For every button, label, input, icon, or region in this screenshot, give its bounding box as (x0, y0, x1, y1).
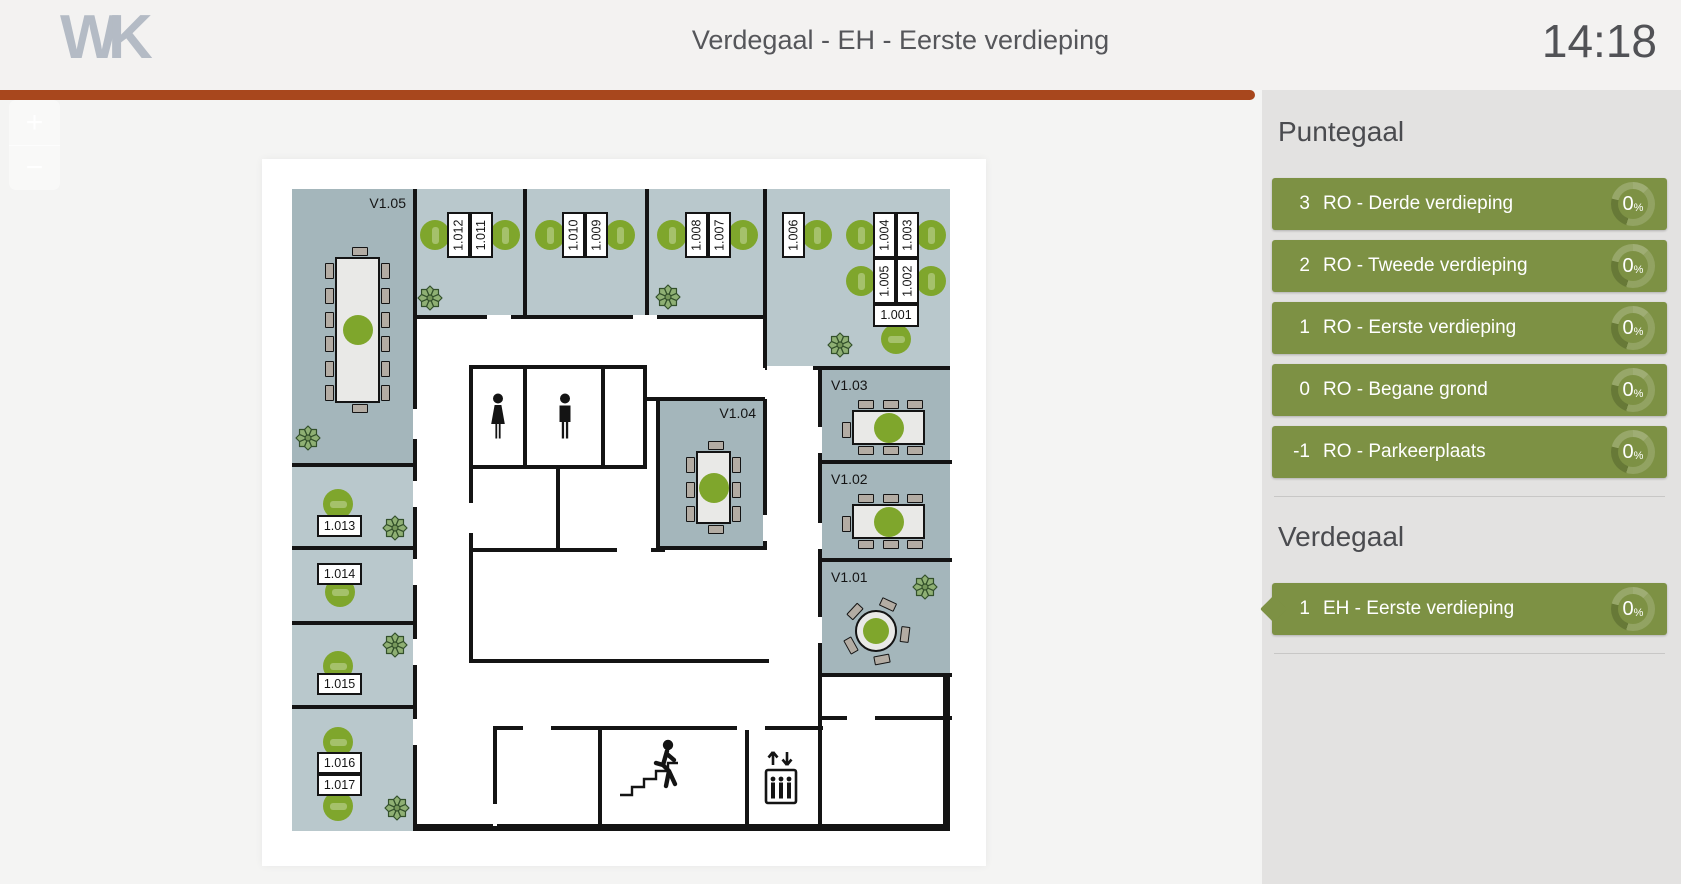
desk-1.010: 1.010 (562, 212, 585, 258)
floor-label: RO - Tweede verdieping (1323, 255, 1611, 277)
top-bar: WK Verdegaal - EH - Eerste verdieping 14… (0, 0, 1681, 90)
wall (469, 365, 645, 369)
building-header: Verdegaal (1278, 521, 1667, 553)
desk-label: 1.006 (787, 219, 800, 250)
chair-icon (325, 288, 334, 304)
section-divider (1274, 496, 1665, 497)
chair-icon (381, 312, 390, 328)
desk-label: 1.005 (878, 265, 891, 296)
door-gap (469, 503, 473, 533)
desk-1.005: 1.005 (873, 258, 896, 304)
desk-label: 1.017 (324, 779, 355, 792)
chair-icon (907, 400, 923, 409)
wall (818, 673, 822, 831)
occupancy-gauge: 0% (1611, 587, 1655, 631)
chair-icon (928, 227, 935, 244)
wall (292, 463, 415, 467)
room-label: V1.02 (831, 471, 868, 487)
chair-icon (547, 227, 554, 244)
door-gap (767, 366, 813, 370)
door-gap (413, 639, 417, 665)
desk-label: 1.008 (690, 219, 703, 250)
chair-icon (617, 227, 624, 244)
desk-label: 1.014 (324, 568, 355, 581)
chair-icon (381, 385, 390, 401)
chair-icon (325, 336, 334, 352)
floor-button-puntegaal-1[interactable]: 1RO - Eerste verdieping0% (1272, 302, 1667, 354)
seat-indicator (881, 324, 911, 354)
door-gap (523, 726, 551, 730)
chair-icon (330, 663, 347, 670)
occupancy-percent: 0% (1611, 430, 1655, 474)
wall (292, 546, 415, 550)
seat-indicator (916, 266, 946, 296)
wall (818, 716, 952, 720)
desk-1.003: 1.003 (896, 212, 919, 258)
floor-number: 1 (1272, 317, 1310, 339)
seat-indicator (490, 220, 520, 250)
door-gap (763, 515, 767, 541)
building-section-verdegaal: Verdegaal1EH - Eerste verdieping0% (1272, 521, 1667, 654)
chair-icon (888, 336, 905, 343)
door-gap (617, 548, 651, 552)
zoom-out-button[interactable]: − (9, 145, 60, 190)
door-gap (413, 719, 417, 745)
zoom-control: + − (9, 100, 60, 190)
page-title: Verdegaal - EH - Eerste verdieping (0, 25, 1681, 56)
door-gap (493, 804, 497, 826)
chair-icon (686, 482, 695, 498)
wall (292, 705, 415, 709)
desk-label: 1.013 (324, 520, 355, 533)
chair-icon (708, 441, 724, 450)
chair-icon (732, 482, 741, 498)
occupancy-percent: 0% (1611, 306, 1655, 350)
desk-1.017: 1.017 (317, 774, 362, 796)
stairs-icon (618, 737, 688, 806)
chair-icon (907, 494, 923, 503)
meeting-table (852, 410, 925, 445)
seat-indicator (728, 220, 758, 250)
wall (643, 365, 647, 469)
seat-indicator (699, 473, 729, 503)
chair-icon (686, 506, 695, 522)
wall (601, 365, 605, 469)
desk-label: 1.011 (475, 220, 488, 250)
door-gap (847, 716, 875, 720)
room-label: V1.03 (831, 377, 868, 393)
door-gap (413, 481, 417, 507)
desk-label: 1.010 (567, 219, 580, 250)
wall (469, 365, 473, 469)
plant-icon (295, 425, 321, 451)
chair-icon (381, 336, 390, 352)
plant-icon (382, 515, 408, 541)
wc-woman-icon (488, 393, 508, 450)
chair-icon (686, 457, 695, 473)
plant-icon (912, 574, 938, 600)
chair-icon (928, 273, 935, 290)
desk-label: 1.001 (880, 309, 911, 322)
wall (656, 546, 767, 550)
desk-1.011: 1.011 (470, 212, 493, 258)
chair-icon (858, 446, 874, 455)
chair-icon (732, 457, 741, 473)
chair-icon (502, 227, 509, 244)
wc-man-icon (555, 393, 575, 450)
seat-indicator (605, 220, 635, 250)
chair-icon (883, 446, 899, 455)
desk-1.004: 1.004 (873, 212, 896, 258)
meeting-table (335, 257, 380, 403)
floor-button-puntegaal-0[interactable]: 0RO - Begane grond0% (1272, 364, 1667, 416)
wall (523, 365, 527, 469)
chair-icon (732, 506, 741, 522)
floor-number: 3 (1272, 193, 1310, 215)
floorplan-canvas: V1.05V1.04V1.03V1.02V1.011.0121.0111.010… (262, 159, 986, 866)
building-section-puntegaal: Puntegaal3RO - Derde verdieping0%2RO - T… (1272, 116, 1667, 497)
plant-icon (417, 285, 443, 311)
occupancy-percent: 0% (1611, 244, 1655, 288)
wall (656, 399, 660, 550)
chair-icon (330, 739, 347, 746)
chair-icon (842, 422, 851, 438)
desk-1.014: 1.014 (317, 563, 362, 585)
door-gap (818, 617, 822, 643)
clock: 14:18 (1542, 14, 1657, 68)
room-label: V1.01 (831, 569, 868, 585)
floor-button-verdegaal-1[interactable]: 1EH - Eerste verdieping0% (1272, 583, 1667, 635)
wall (469, 659, 769, 663)
desk-1.007: 1.007 (708, 212, 731, 258)
plant-icon (382, 632, 408, 658)
occupancy-percent: 0% (1611, 182, 1655, 226)
sidebar: Puntegaal3RO - Derde verdieping0%2RO - T… (1262, 90, 1681, 884)
building-header: Puntegaal (1278, 116, 1667, 148)
chair-icon (842, 516, 851, 532)
floor-button-puntegaal-2[interactable]: 2RO - Tweede verdieping0% (1272, 240, 1667, 292)
floor-number: -1 (1272, 441, 1310, 463)
chair-icon (858, 400, 874, 409)
seat-indicator (846, 266, 876, 296)
chair-icon (381, 361, 390, 377)
desk-1.013: 1.013 (317, 515, 362, 537)
desk-label: 1.015 (324, 678, 355, 691)
elevator-icon (763, 748, 799, 811)
wall (645, 397, 765, 401)
seat-indicator (874, 507, 904, 537)
floor-number: 0 (1272, 379, 1310, 401)
chair-icon (858, 227, 865, 244)
seat-indicator (874, 413, 904, 443)
occupancy-percent: 0% (1611, 587, 1655, 631)
desk-1.012: 1.012 (447, 212, 470, 258)
seat-indicator (343, 315, 373, 345)
wall (763, 189, 767, 368)
meeting-table (852, 504, 925, 539)
floorplan: V1.05V1.04V1.03V1.02V1.011.0121.0111.010… (262, 159, 986, 866)
floor-number: 2 (1272, 255, 1310, 277)
desk-label: 1.009 (590, 219, 603, 250)
door-gap (818, 523, 822, 549)
wall (818, 673, 952, 677)
chair-icon (740, 227, 747, 244)
room-label: V1.04 (719, 405, 756, 421)
chair-icon (708, 525, 724, 534)
floor-label: RO - Eerste verdieping (1323, 317, 1611, 339)
chair-icon (332, 589, 349, 596)
wall (523, 189, 527, 317)
door-gap (818, 427, 822, 453)
chair-icon (858, 494, 874, 503)
chair-icon (907, 446, 923, 455)
seat-indicator (657, 220, 687, 250)
desk-label: 1.016 (324, 757, 355, 770)
wall (413, 315, 765, 319)
chair-icon (325, 361, 334, 377)
chair-icon (814, 227, 821, 244)
door-gap (737, 726, 765, 730)
chair-icon (883, 494, 899, 503)
floor-label: EH - Eerste verdieping (1323, 598, 1611, 620)
plant-icon (827, 332, 853, 358)
occupancy-gauge: 0% (1611, 306, 1655, 350)
wall (292, 621, 415, 625)
wall (645, 189, 649, 317)
chair-icon (325, 312, 334, 328)
floor-label: RO - Derde verdieping (1323, 193, 1611, 215)
chair-icon (325, 263, 334, 279)
chair-icon (899, 626, 910, 643)
desk-label: 1.012 (452, 219, 465, 250)
wall (818, 460, 952, 464)
chair-icon (330, 501, 347, 508)
seat-indicator (916, 220, 946, 250)
desk-label: 1.002 (901, 265, 914, 296)
occupancy-gauge: 0% (1611, 368, 1655, 412)
chair-icon (352, 404, 368, 413)
desk-1.001: 1.001 (873, 304, 919, 327)
seat-indicator (863, 618, 889, 644)
accent-divider-bar (0, 90, 1255, 100)
zoom-in-button[interactable]: + (9, 100, 60, 145)
chair-icon (432, 227, 439, 244)
plant-icon (655, 284, 681, 310)
room-label: V1.05 (369, 195, 406, 211)
floor-button-puntegaal--1[interactable]: -1RO - Parkeerplaats0% (1272, 426, 1667, 478)
desk-1.016: 1.016 (317, 752, 362, 774)
wall (556, 465, 560, 550)
desk-1.002: 1.002 (896, 258, 919, 304)
chair-icon (858, 273, 865, 290)
occupancy-gauge: 0% (1611, 182, 1655, 226)
section-divider (1274, 653, 1665, 654)
chair-icon (352, 247, 368, 256)
chair-icon (325, 385, 334, 401)
chair-icon (883, 540, 899, 549)
desk-1.008: 1.008 (685, 212, 708, 258)
desk-1.015: 1.015 (317, 673, 362, 695)
plant-icon (384, 795, 410, 821)
wall (818, 558, 952, 562)
seat-indicator (802, 220, 832, 250)
chair-icon (883, 400, 899, 409)
desk-label: 1.007 (713, 219, 726, 250)
door-gap (633, 315, 657, 319)
floor-label: RO - Begane grond (1323, 379, 1611, 401)
occupancy-percent: 0% (1611, 368, 1655, 412)
meeting-table (855, 610, 897, 652)
floor-button-puntegaal-3[interactable]: 3RO - Derde verdieping0% (1272, 178, 1667, 230)
meeting-table (696, 451, 731, 524)
floor-number: 1 (1272, 598, 1310, 620)
occupancy-gauge: 0% (1611, 244, 1655, 288)
chair-icon (330, 803, 347, 810)
door-gap (413, 559, 417, 585)
chair-icon (669, 227, 676, 244)
desk-1.006: 1.006 (782, 212, 805, 258)
door-gap (413, 409, 417, 439)
wall (745, 726, 749, 831)
seat-indicator (535, 220, 565, 250)
wall (598, 726, 602, 831)
chair-icon (381, 263, 390, 279)
chair-icon (858, 540, 874, 549)
door-gap (487, 315, 511, 319)
floor-label: RO - Parkeerplaats (1323, 441, 1611, 463)
desk-1.009: 1.009 (585, 212, 608, 258)
desk-label: 1.004 (878, 219, 891, 250)
wall (469, 465, 473, 663)
seat-indicator (846, 220, 876, 250)
desk-label: 1.003 (901, 219, 914, 250)
seat-indicator (420, 220, 450, 250)
occupancy-gauge: 0% (1611, 430, 1655, 474)
chair-icon (907, 540, 923, 549)
chair-icon (381, 288, 390, 304)
